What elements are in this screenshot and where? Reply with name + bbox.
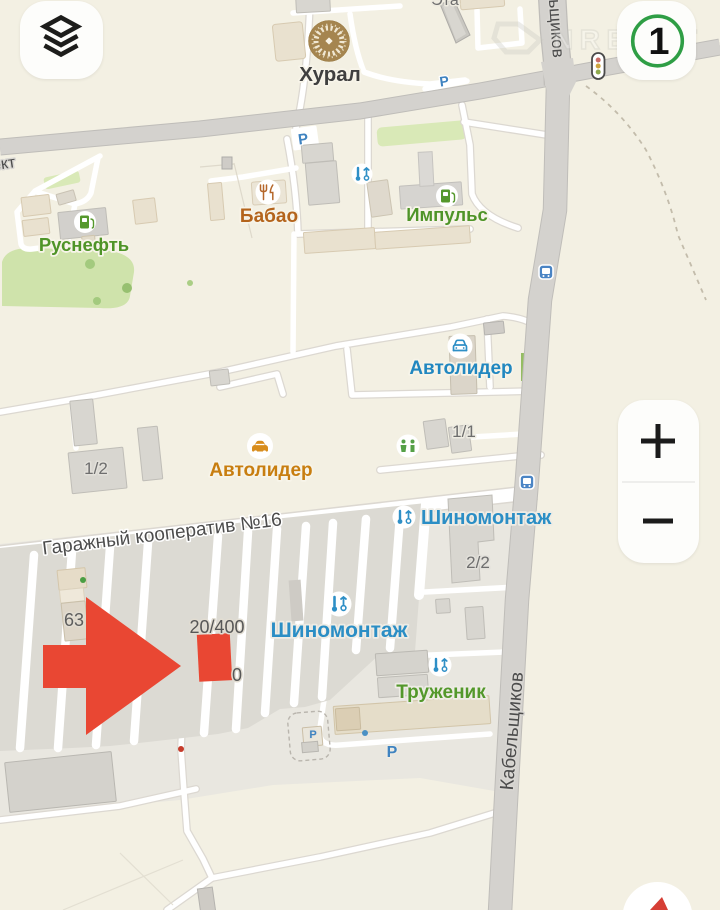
svg-text:Труженик: Труженик — [396, 682, 486, 703]
svg-text:Автолидер: Автолидер — [209, 460, 312, 481]
svg-text:Эта: Эта — [431, 0, 459, 9]
svg-text:1: 1 — [648, 21, 669, 63]
svg-text:0: 0 — [232, 665, 242, 685]
svg-text:63: 63 — [64, 610, 84, 630]
svg-text:1/1: 1/1 — [452, 422, 476, 441]
svg-text:Бабао: Бабао — [240, 206, 298, 227]
svg-text:1/2: 1/2 — [84, 459, 108, 478]
svg-text:Импульс: Импульс — [406, 204, 488, 225]
svg-text:Шиномонтаж: Шиномонтаж — [421, 507, 552, 529]
svg-text:Р: Р — [387, 744, 398, 761]
svg-text:Автолидер: Автолидер — [409, 358, 512, 379]
svg-text:Хурал: Хурал — [299, 63, 360, 86]
svg-text:Руснефть: Руснефть — [39, 234, 129, 255]
svg-text:20/400: 20/400 — [189, 617, 244, 637]
svg-text:Р: Р — [309, 729, 316, 741]
svg-text:Шиномонтаж: Шиномонтаж — [271, 619, 409, 642]
svg-text:2/2: 2/2 — [466, 553, 490, 572]
